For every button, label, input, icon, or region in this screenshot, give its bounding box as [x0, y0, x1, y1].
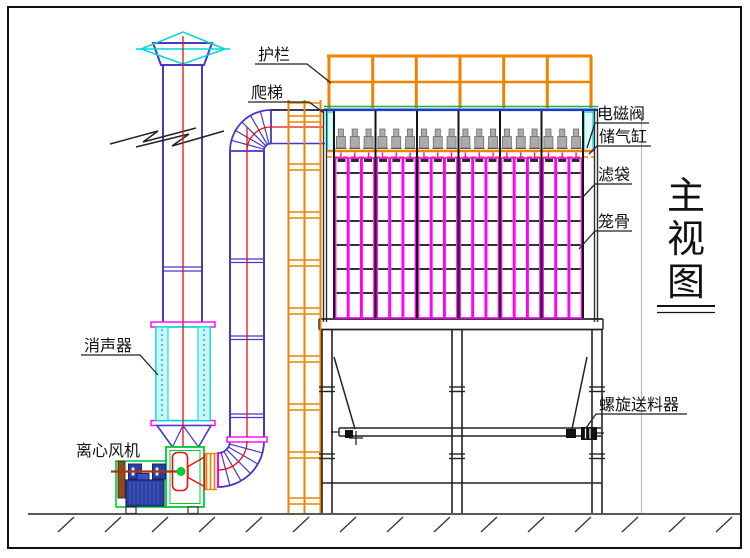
filter-bag — [349, 158, 361, 318]
bag-top-cap — [517, 159, 525, 162]
pulse-valve-body — [364, 137, 373, 149]
pulse-valve-head — [546, 129, 551, 137]
baghouse-front-view-svg: 护栏 爬梯 电磁阀 储气缸 滤袋 笼骨 消声器 离心风机 螺旋送料器 主 视 图 — [0, 0, 750, 558]
pulse-valve-body — [516, 137, 525, 149]
label-ladder: 爬梯 — [251, 84, 283, 102]
pulse-valve-head — [394, 129, 399, 137]
pulse-valve-head — [463, 129, 468, 137]
filter-bag — [432, 158, 444, 318]
label-solenoid-valve: 电磁阀 — [597, 105, 645, 123]
filter-bag — [362, 158, 374, 318]
pulse-valve-head — [435, 129, 440, 137]
pulse-valve-head — [338, 129, 343, 137]
pulse-valve-body — [461, 137, 470, 149]
bag-top-cap — [351, 159, 359, 162]
pulse-valve-body — [392, 137, 401, 149]
filter-bag — [528, 158, 540, 318]
filter-bag — [445, 158, 457, 318]
air-reservoir-left — [328, 112, 334, 151]
view-title-char-3: 图 — [667, 262, 705, 304]
filter-bag — [419, 158, 431, 318]
filter-bag — [336, 158, 348, 318]
bag-top-cap — [530, 159, 538, 162]
label-filter-bag: 滤袋 — [598, 166, 630, 184]
pulse-valve-body — [350, 137, 359, 149]
filter-bag — [502, 158, 514, 318]
pulse-valve-head — [352, 129, 357, 137]
pulse-valve-head — [532, 129, 537, 137]
fan-hub — [177, 467, 186, 476]
bag-top-cap — [421, 159, 429, 162]
view-title-char-1: 主 — [667, 176, 705, 218]
pulse-valve-body — [502, 137, 511, 149]
pulse-valve-head — [477, 129, 482, 137]
bag-top-cap — [447, 159, 455, 162]
filter-bag — [515, 158, 527, 318]
bag-top-cap — [434, 159, 442, 162]
pulse-valve-body — [433, 137, 442, 149]
view-title-char-2: 视 — [667, 219, 705, 261]
filter-bag — [543, 158, 555, 318]
bag-top-cap — [406, 159, 414, 162]
pulse-valve-head — [518, 129, 523, 137]
pulse-valve-head — [449, 129, 454, 137]
pulse-valve-body — [406, 137, 415, 149]
filter-bag — [556, 158, 568, 318]
filter-bag — [390, 158, 402, 318]
pulse-valve-body — [572, 137, 581, 149]
pulse-valve-body — [475, 137, 484, 149]
label-centrifugal-fan: 离心风机 — [76, 442, 140, 460]
bag-top-cap — [545, 159, 553, 162]
bag-top-cap — [338, 159, 346, 162]
bag-top-cap — [572, 159, 580, 162]
pulse-valve-body — [530, 137, 539, 149]
engineering-drawing: 护栏 爬梯 电磁阀 储气缸 滤袋 笼骨 消声器 离心风机 螺旋送料器 主 视 图 — [0, 0, 750, 558]
bag-top-cap — [475, 159, 483, 162]
pulse-valve-head — [560, 129, 565, 137]
pulse-valve-head — [366, 129, 371, 137]
label-guardrail: 护栏 — [258, 46, 290, 64]
pulse-valve-body — [489, 137, 498, 149]
pulse-valve-body — [378, 137, 387, 149]
bag-top-cap — [558, 159, 566, 162]
bag-top-cap — [462, 159, 470, 162]
pulse-valve-head — [380, 129, 385, 137]
pulse-valve-body — [447, 137, 456, 149]
pulse-valve-head — [421, 129, 426, 137]
bag-top-cap — [392, 159, 400, 162]
pulse-valve-body — [544, 137, 553, 149]
pulse-valve-head — [504, 129, 509, 137]
label-air-reservoir: 储气缸 — [599, 127, 647, 146]
pulse-valve-head — [407, 129, 412, 137]
bag-top-cap — [364, 159, 372, 162]
pulse-valve-body — [558, 137, 567, 149]
bag-top-cap — [379, 159, 387, 162]
fan-pulley — [118, 462, 125, 499]
filter-bag — [377, 158, 389, 318]
bag-top-cap — [489, 159, 497, 162]
bag-top-cap — [504, 159, 512, 162]
pulse-valve-head — [490, 129, 495, 137]
label-silencer: 消声器 — [84, 337, 132, 355]
pulse-valve-body — [419, 137, 428, 149]
flex-connector — [205, 454, 217, 490]
pulse-valve-head — [573, 129, 578, 137]
label-bag-cage: 笼骨 — [598, 213, 630, 231]
filter-bag — [487, 158, 499, 318]
filter-bag — [473, 158, 485, 318]
filter-bag — [460, 158, 472, 318]
filter-bag — [570, 158, 582, 318]
pulse-valve-body — [336, 137, 345, 149]
filter-bag — [404, 158, 416, 318]
label-screw-feeder: 螺旋送料器 — [599, 396, 679, 414]
